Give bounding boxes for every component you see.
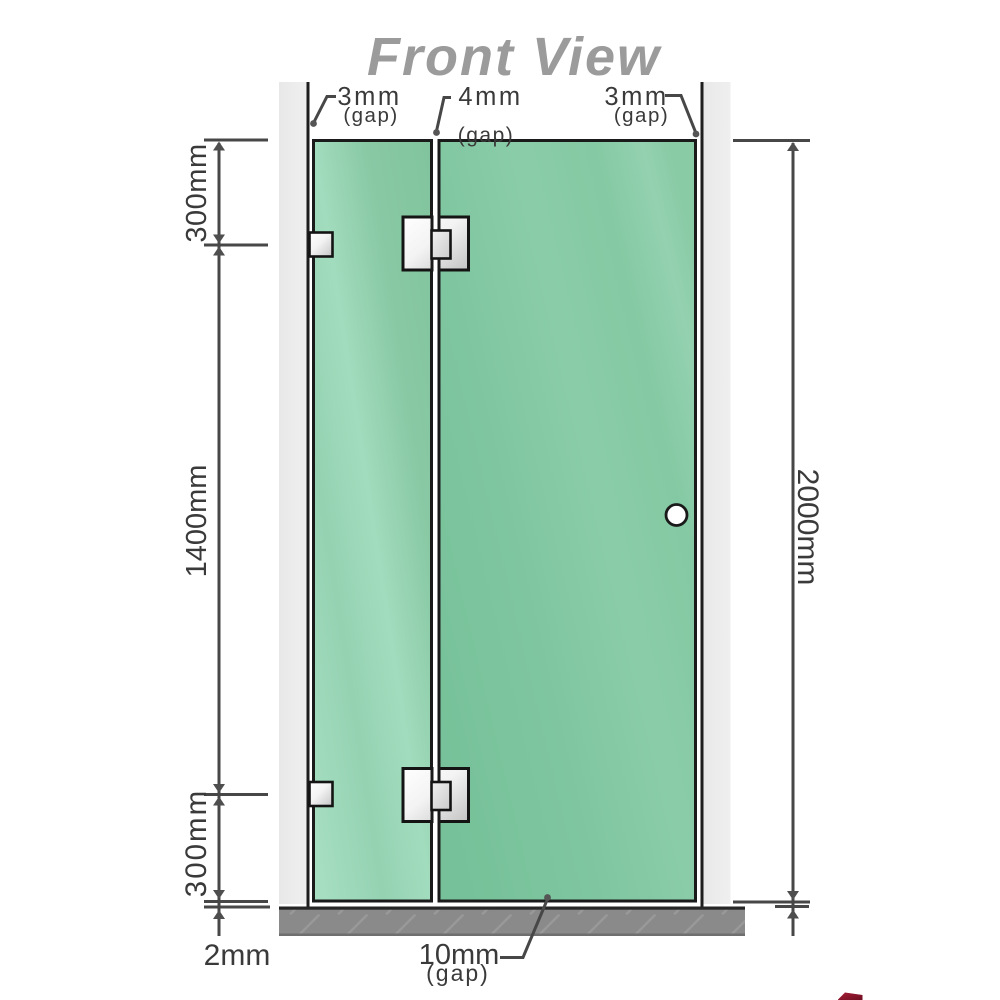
svg-text:1400mm: 1400mm xyxy=(181,465,213,578)
svg-text:2mm: 2mm xyxy=(204,939,271,972)
svg-text:(gap): (gap) xyxy=(458,124,515,147)
svg-text:300mm: 300mm xyxy=(181,143,213,242)
svg-text:(gap): (gap) xyxy=(614,104,669,127)
svg-text:4mm: 4mm xyxy=(458,83,522,111)
svg-text:Front View: Front View xyxy=(367,27,662,87)
svg-text:300mm: 300mm xyxy=(180,789,213,897)
svg-text:2000mm: 2000mm xyxy=(791,469,824,586)
svg-text:(gap): (gap) xyxy=(426,960,490,986)
svg-text:(gap): (gap) xyxy=(343,104,398,127)
